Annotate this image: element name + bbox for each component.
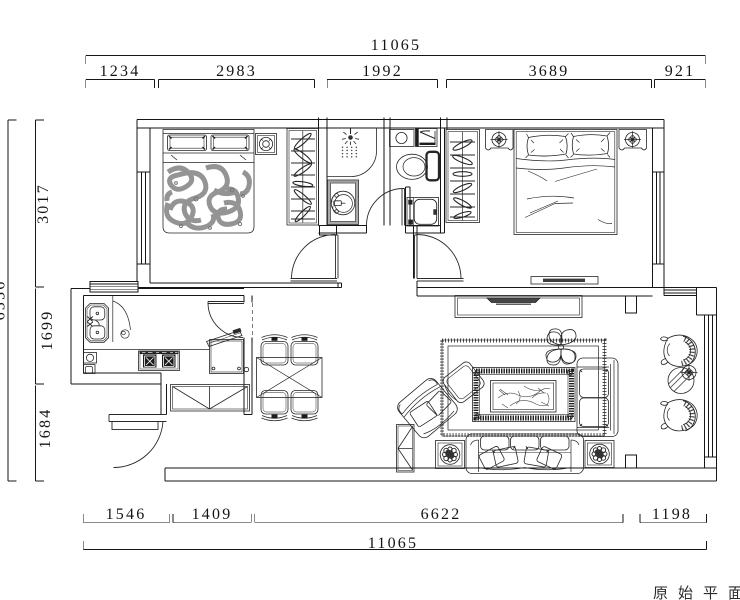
svg-text:6622: 6622 [421, 506, 462, 523]
svg-text:1409: 1409 [192, 506, 233, 523]
svg-text:11065: 11065 [368, 535, 418, 552]
svg-text:2983: 2983 [216, 63, 257, 80]
svg-text:921: 921 [665, 63, 696, 80]
svg-text:3017: 3017 [35, 183, 52, 224]
svg-text:1198: 1198 [652, 506, 692, 523]
svg-text:1546: 1546 [106, 506, 147, 523]
svg-text:1992: 1992 [362, 63, 403, 80]
svg-text:1699: 1699 [39, 310, 56, 351]
svg-text:1684: 1684 [37, 408, 54, 449]
svg-text:1234: 1234 [100, 63, 141, 80]
svg-text:11065: 11065 [371, 37, 421, 54]
svg-text:原始平面: 原始平面 [653, 585, 740, 600]
svg-text:3689: 3689 [529, 63, 570, 80]
svg-text:6556: 6556 [0, 280, 9, 321]
